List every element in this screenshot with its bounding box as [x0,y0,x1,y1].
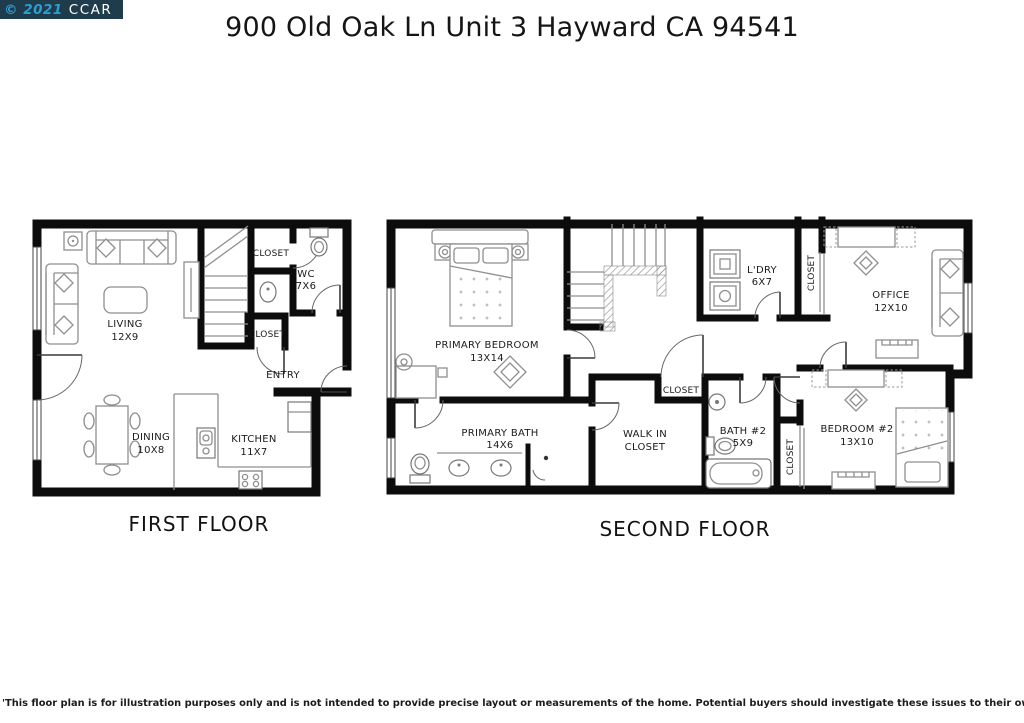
stove-icon [239,471,262,489]
floor-plan-page: © 2021 CCAR 900 Old Oak Ln Unit 3 Haywar… [0,0,1024,723]
fridge-icon [288,402,311,432]
room-label-walk-in-closet: WALK IN [623,429,667,440]
sofa-icon [87,231,176,264]
room-label-primary-bedroom: PRIMARY BEDROOM [435,340,539,351]
room-dims-laundry: 6X7 [752,277,772,288]
room-label-wc: WC [297,269,314,280]
shower-icon [533,456,548,480]
disclaimer-text: 'This floor plan is for illustration pur… [2,698,1008,709]
sink-icon [197,428,215,458]
bedroom2-dresser-icon [832,472,875,489]
room-dims-bath2: 5X9 [733,438,753,449]
loveseat-icon [46,264,78,344]
bed-icon [896,408,948,487]
bed-icon [432,230,528,326]
room-label-kitchen: KITCHEN [231,434,276,445]
toilet-icon [310,228,328,256]
first-floor-plan: LIVING 12X9 CLOSET WC 7X6 CLOSET ENTRY D… [33,224,347,536]
bathtub-icon [706,459,771,488]
washer-icon [710,250,740,278]
caption-second-floor: SECOND FLOOR [599,517,770,541]
room-dims-primary-bedroom: 13X14 [470,353,504,364]
room-label-bath2: BATH #2 [720,426,767,437]
room-label-primary-bath: PRIMARY BATH [461,428,538,439]
room-label-walk-in-closet-2: CLOSET [625,442,666,453]
bedroom2-desk-icon [812,370,902,411]
toilet-icon [706,437,735,455]
room-dims-living: 12X9 [111,332,138,343]
side-table-icon [64,232,82,250]
room-label-closet-lower: CLOSET [249,330,285,340]
room-dims-primary-bath: 14X6 [486,440,513,451]
bath2-sink-icon [709,394,725,410]
room-label-dining: DINING [132,432,170,443]
office-sofa-icon [932,250,963,336]
room-dims-dining: 10X8 [137,445,164,456]
room-dims-bedroom2: 13X10 [840,437,874,448]
room-dims-office: 12X10 [874,303,908,314]
room-dims-wc: 7X6 [296,281,316,292]
room-label-living: LIVING [107,319,142,330]
room-label-entry: ENTRY [266,370,300,381]
stairs-icon [567,224,666,331]
dryer-icon [710,282,740,310]
room-label-closet-hall: CLOSET [663,386,699,396]
room-label-closet-office: CLOSET [807,255,817,291]
wc-sink-icon [260,282,276,302]
room-label-laundry: L'DRY [747,265,778,276]
office-table-icon [876,340,918,358]
caption-first-floor: FIRST FLOOR [129,512,270,536]
stairs-icon [204,226,248,336]
room-label-bedroom2: BEDROOM #2 [820,424,893,435]
coffee-table-icon [104,287,147,313]
floorplan-canvas: LIVING 12X9 CLOSET WC 7X6 CLOSET ENTRY D… [0,0,1024,723]
room-label-closet-upper: CLOSET [253,249,289,259]
room-label-closet-bedroom2: CLOSET [786,439,796,475]
bedroom-dresser-icon [396,354,447,398]
room-dims-kitchen: 11X7 [240,447,267,458]
tv-console-icon [184,262,199,318]
toilet-icon [410,454,430,483]
bath-sinks-icon [437,453,522,476]
room-label-office: OFFICE [872,290,909,301]
office-desk-icon [824,227,915,275]
second-floor-plan: PRIMARY BEDROOM 13X14 L'DRY 6X7 CLOSET O… [387,220,972,541]
